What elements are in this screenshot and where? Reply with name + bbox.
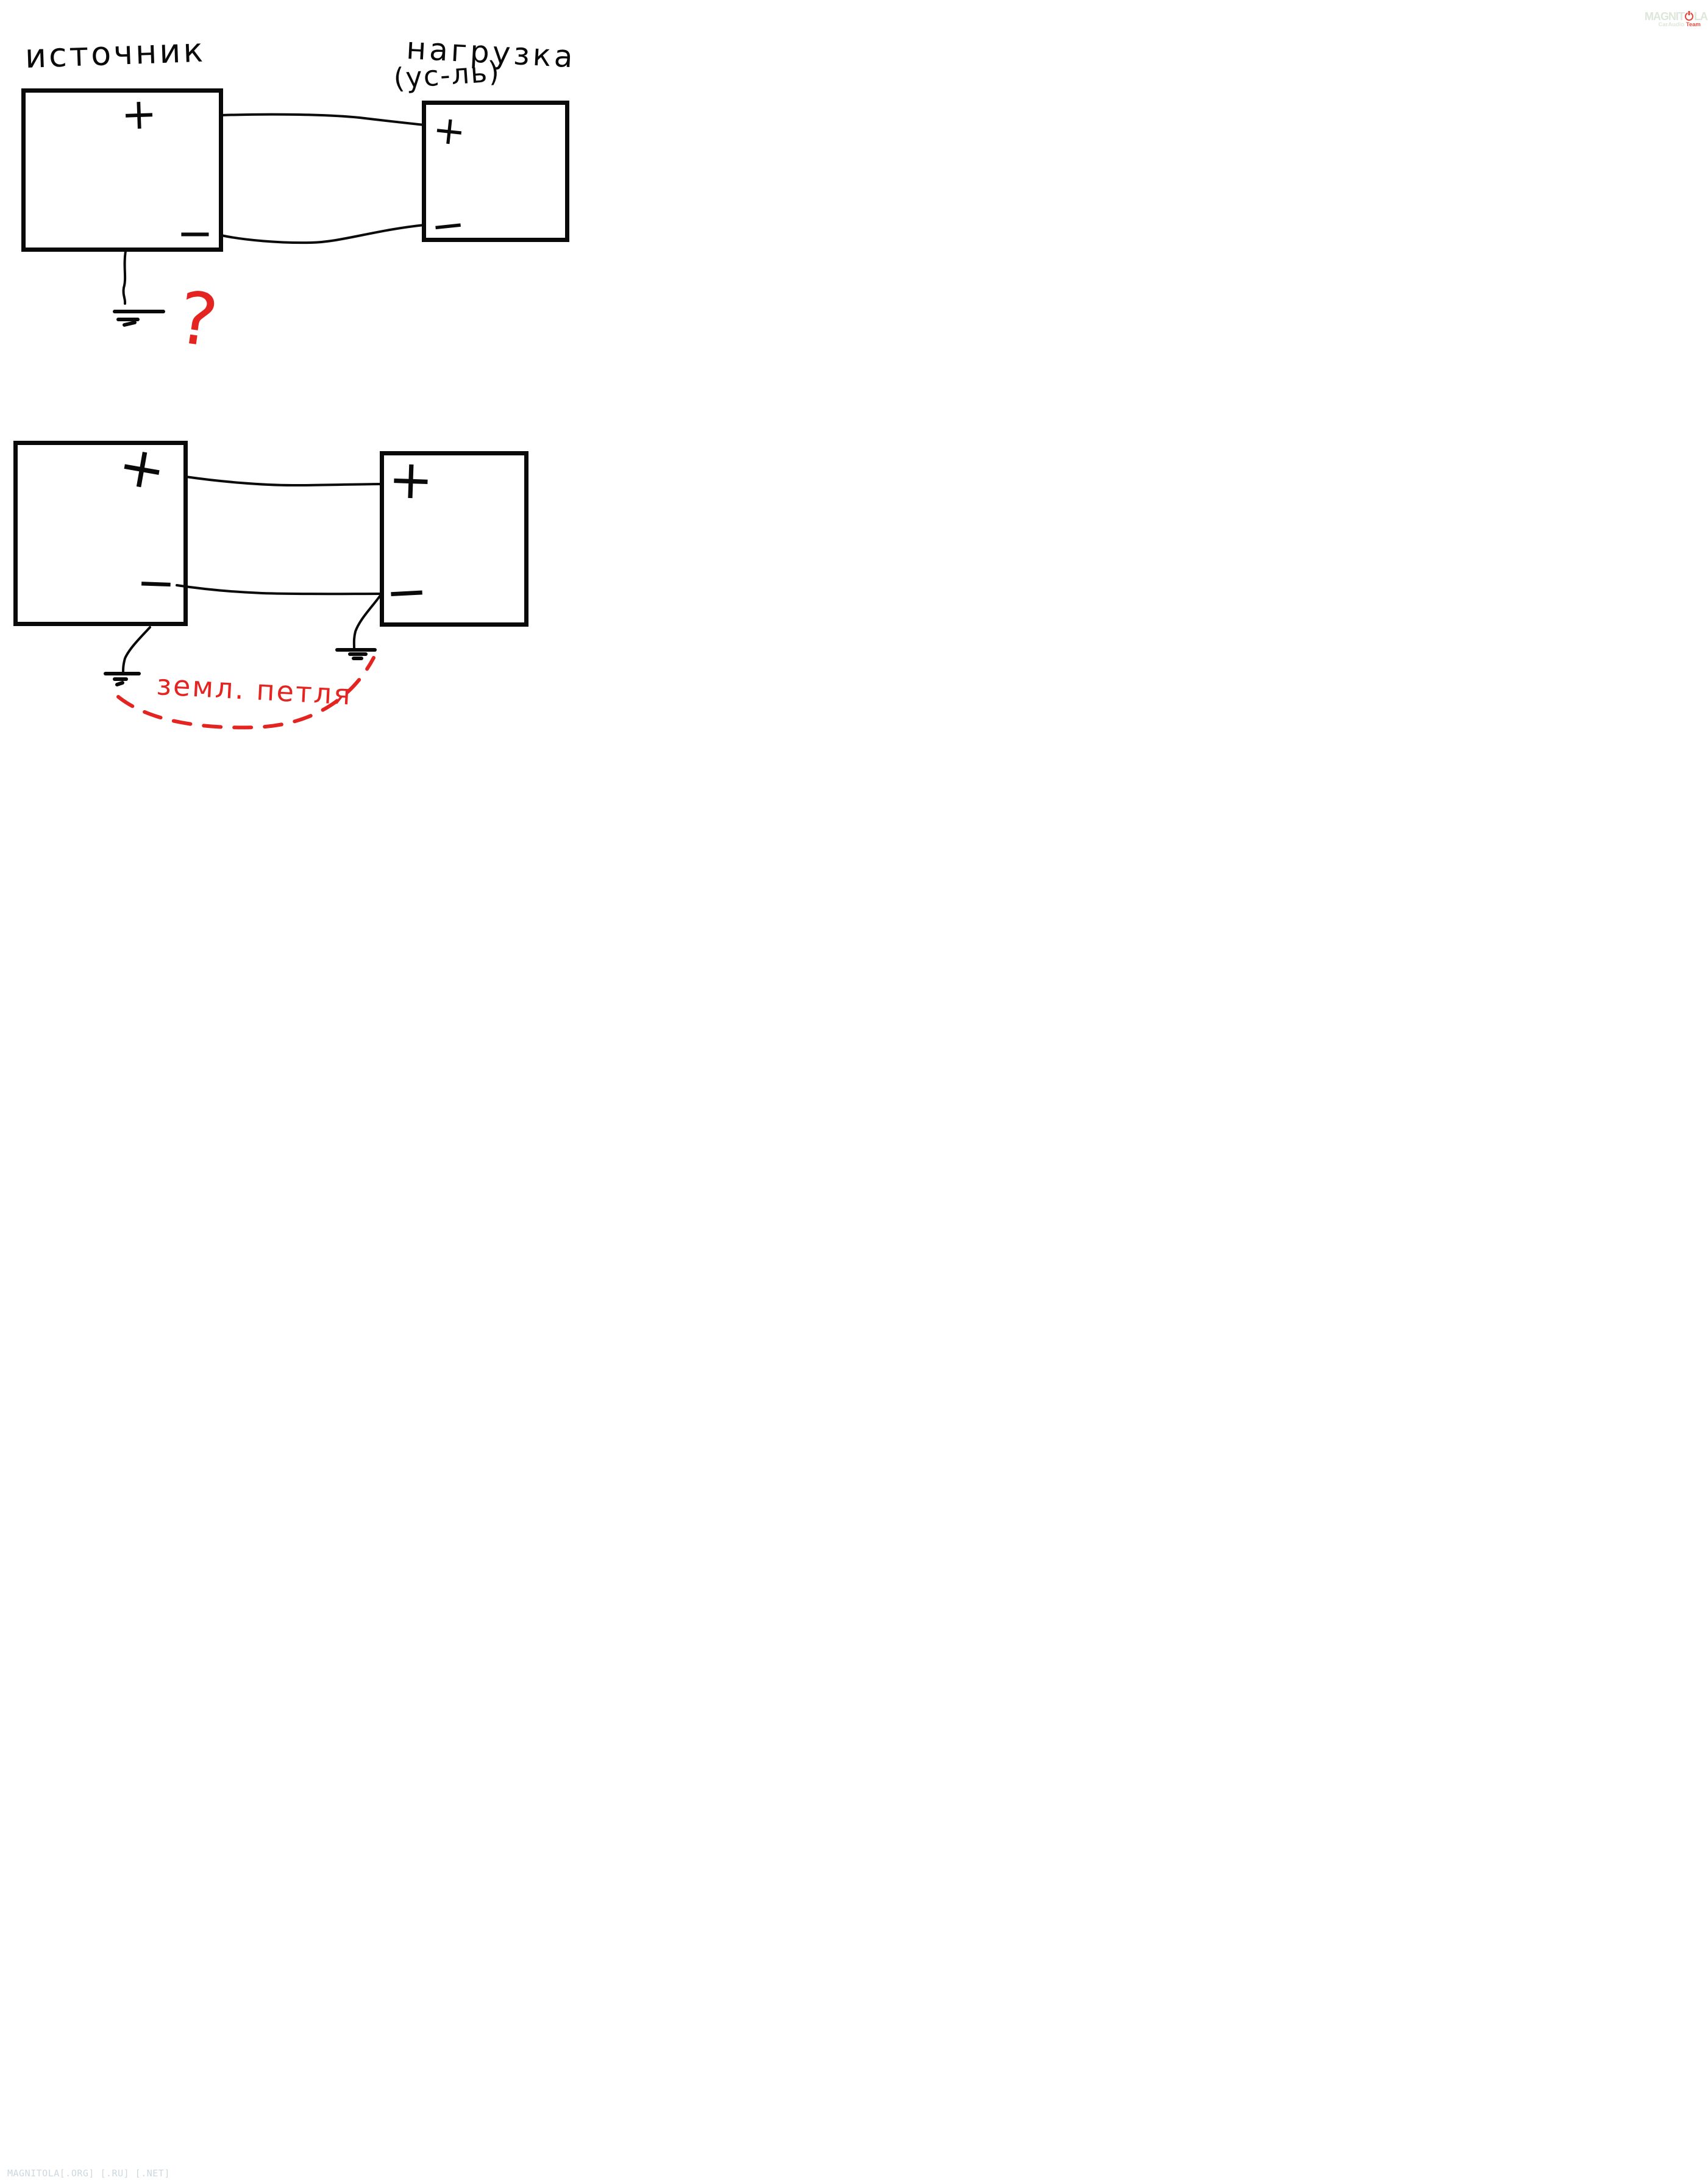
- ground-symbol-top: [115, 312, 163, 325]
- ground-symbol-bottom-left: [105, 674, 139, 685]
- bottom-left-minus-terminal: −: [136, 559, 176, 607]
- bottom-right-minus-terminal: −: [385, 566, 429, 618]
- ground-wire-top: [124, 251, 126, 304]
- paint-canvas: источник нагрузка (ус-ль) ? + − + − + − …: [0, 0, 1708, 2180]
- site-watermark: MAGNITOLA[.ORG] [.RU] [.NET]: [7, 2168, 170, 2179]
- logo-subtitle-accent: Team: [1686, 21, 1701, 28]
- logo-brand-prefix: MAGNIT: [1645, 10, 1684, 23]
- ground-symbol-bottom-right: [337, 650, 375, 658]
- power-tick-icon: [1688, 11, 1690, 15]
- bottom-right-plus-terminal: +: [388, 452, 435, 508]
- logo-brand-suffix: LA: [1694, 10, 1707, 23]
- wire-plus-top: [221, 115, 424, 125]
- magnitola-logo: MAGNITLA CarAudio Team: [1645, 11, 1701, 28]
- ground-wire-bottom-left: [123, 627, 150, 672]
- bottom-left-plus-terminal: +: [114, 436, 170, 500]
- wire-minus-top: [221, 225, 424, 243]
- logo-brand-line: MAGNITLA: [1645, 11, 1701, 22]
- power-button-icon: [1685, 12, 1693, 21]
- source-minus-terminal: −: [177, 211, 213, 255]
- wire-minus-bottom: [177, 585, 382, 594]
- load-plus-terminal: +: [431, 110, 468, 152]
- source-plus-terminal: +: [120, 92, 157, 136]
- load-label-line2: (ус-ль): [393, 57, 501, 93]
- logo-subtitle-main: CarAudio: [1658, 21, 1684, 28]
- wire-plus-bottom: [186, 477, 382, 485]
- logo-subtitle: CarAudio Team: [1645, 22, 1701, 28]
- load-minus-terminal: −: [429, 204, 467, 247]
- source-label: источник: [24, 34, 206, 73]
- ground-wire-bottom-right: [354, 596, 380, 648]
